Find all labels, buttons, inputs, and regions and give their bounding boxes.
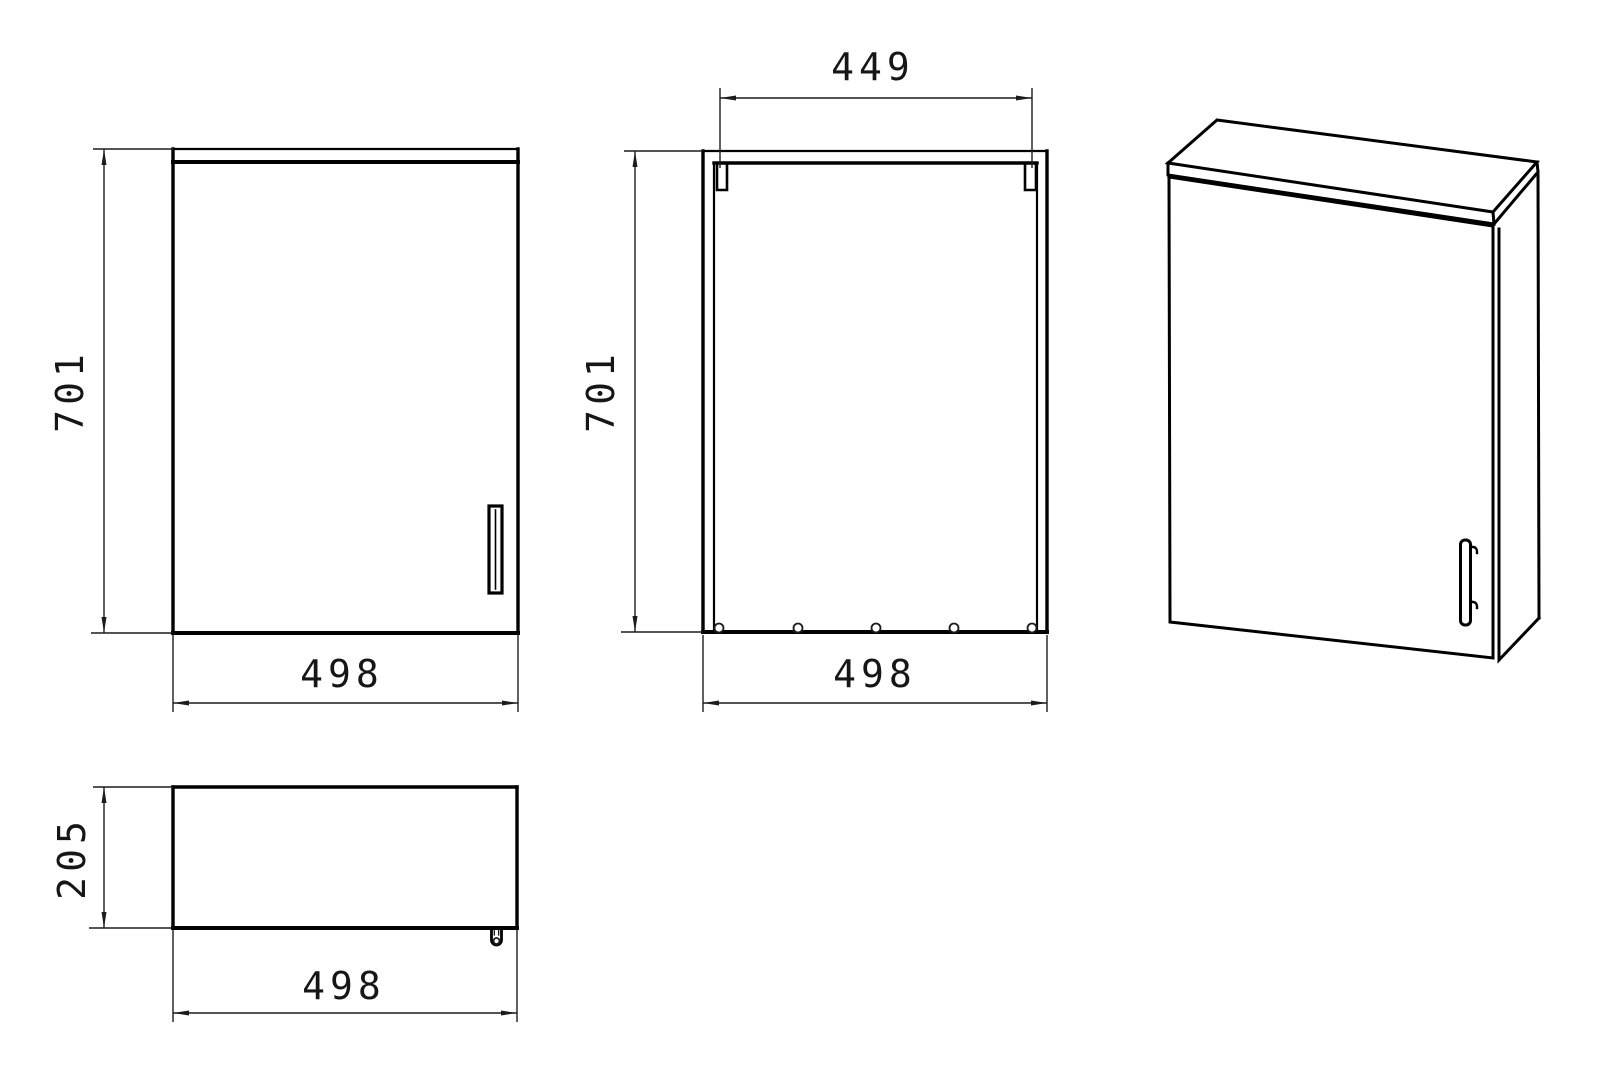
back-screw-hole-4 bbox=[950, 624, 959, 633]
persp-carcass-right-edge bbox=[1499, 229, 1539, 660]
cabinet-drawing: 701 498 449 701 498 bbox=[0, 0, 1600, 1084]
top-depth-label: 205 bbox=[50, 816, 94, 900]
back-screw-hole-1 bbox=[715, 624, 724, 633]
back-right-hanging-bracket bbox=[1025, 163, 1036, 190]
back-screw-hole-5 bbox=[1028, 624, 1037, 633]
front-view bbox=[173, 149, 518, 633]
persp-door-handle bbox=[1461, 540, 1471, 625]
top-view-dimensions: 205 498 bbox=[50, 787, 517, 1022]
perspective-view bbox=[1168, 120, 1539, 660]
persp-back-right-edge bbox=[1538, 172, 1539, 618]
back-screw-hole-3 bbox=[872, 624, 881, 633]
top-handle-screw bbox=[494, 938, 500, 944]
back-left-hanging-bracket bbox=[717, 163, 727, 190]
back-view bbox=[703, 151, 1047, 633]
persp-top-face bbox=[1168, 120, 1537, 212]
persp-top-slab-right-end bbox=[1494, 162, 1538, 224]
back-view-dimensions: 449 701 498 bbox=[579, 45, 1047, 712]
persp-door-outline bbox=[1169, 177, 1493, 658]
back-width-label: 498 bbox=[833, 652, 917, 696]
front-height-label: 701 bbox=[48, 349, 92, 433]
front-view-dimensions: 701 498 bbox=[48, 149, 518, 712]
top-view bbox=[173, 787, 517, 945]
top-width-label: 498 bbox=[302, 964, 386, 1008]
technical-drawing-canvas: 701 498 449 701 498 bbox=[0, 0, 1600, 1084]
front-width-label: 498 bbox=[300, 652, 384, 696]
back-screw-hole-2 bbox=[794, 624, 803, 633]
persp-top-slab-front bbox=[1168, 163, 1494, 224]
back-height-label: 701 bbox=[579, 349, 623, 433]
persp-door-top-edge bbox=[1169, 177, 1493, 226]
back-span-label: 449 bbox=[831, 45, 915, 89]
